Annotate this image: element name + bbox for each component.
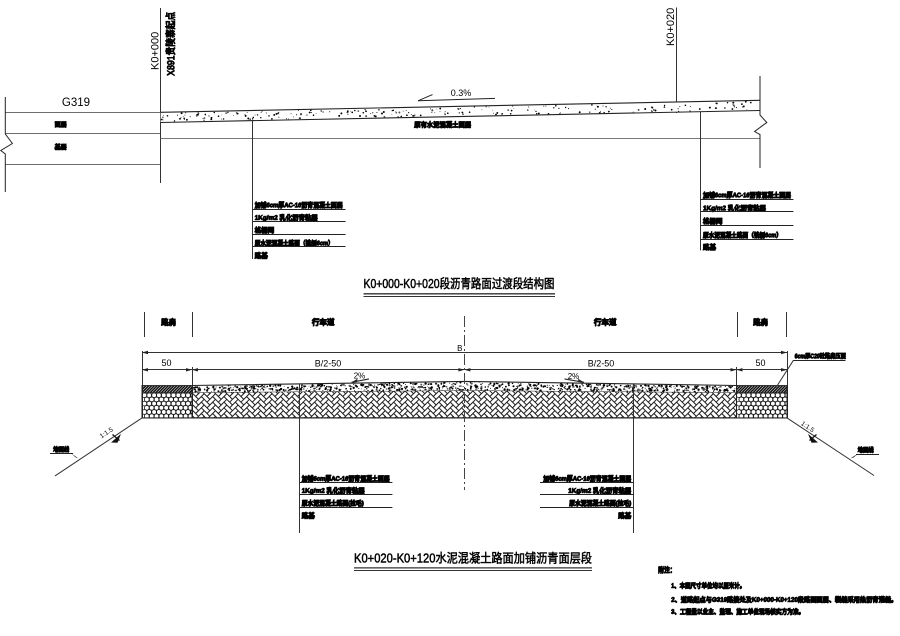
svg-text:路肩: 路肩 [753,317,768,327]
svg-text:行车道: 行车道 [593,317,617,327]
svg-text:1Kg/m2 乳化沥青粘层: 1Kg/m2 乳化沥青粘层 [302,486,366,495]
svg-text:路基: 路基 [703,242,717,251]
svg-text:B/2-50: B/2-50 [588,359,615,369]
svg-text:6cm厚C20砼路肩压顶: 6cm厚C20砼路肩压顶 [795,352,846,360]
svg-text:K0+020: K0+020 [665,8,677,46]
svg-text:G319: G319 [62,97,90,109]
svg-text:1Kg/m2 乳化沥青粘层: 1Kg/m2 乳化沥青粘层 [255,213,319,222]
svg-text:面层: 面层 [55,121,67,129]
svg-text:格栅网: 格栅网 [703,216,723,225]
svg-text:路肩: 路肩 [161,317,176,327]
svg-text:K0+020-K0+120水泥混凝土路面加铺沥青面层段: K0+020-K0+120水泥混凝土路面加铺沥青面层段 [354,551,592,566]
svg-text:路基: 路基 [618,511,632,520]
svg-text:原有水泥混凝土面层: 原有水泥混凝土面层 [414,120,471,129]
svg-text:原水泥混凝土路面(拉毛): 原水泥混凝土路面(拉毛) [302,498,364,507]
svg-text:行车道: 行车道 [311,317,335,327]
svg-text:加铺6cm厚AC-16沥青混凝土面层: 加铺6cm厚AC-16沥青混凝土面层 [301,473,390,482]
svg-text:2%: 2% [354,372,366,381]
svg-text:原水泥混凝土路面（铣刨6cm）: 原水泥混凝土路面（铣刨6cm） [703,230,782,239]
svg-text:加铺6cm厚AC-16沥青混凝土面层: 加铺6cm厚AC-16沥青混凝土面层 [254,200,343,209]
svg-text:3、工程量以业主、监理、施工单位现场核实方为准。: 3、工程量以业主、监理、施工单位现场核实方为准。 [671,607,804,616]
svg-text:路基: 路基 [302,511,316,520]
svg-text:1、本图尺寸单位均以厘米计。: 1、本图尺寸单位均以厘米计。 [671,581,745,590]
svg-text:B/2-50: B/2-50 [315,359,342,369]
svg-text:B: B [457,344,462,353]
svg-text:地面线: 地面线 [858,446,874,454]
svg-text:50: 50 [161,358,171,368]
svg-text:K0+000: K0+000 [150,32,162,70]
svg-text:K0+000-K0+020段沥青路面过渡段结构图: K0+000-K0+020段沥青路面过渡段结构图 [364,276,555,291]
svg-text:地面线: 地面线 [53,446,69,454]
svg-text:路基: 路基 [255,250,269,259]
svg-text:基层: 基层 [54,143,67,151]
svg-text:0.3%: 0.3% [451,88,472,98]
svg-text:原水泥混凝土路面(拉毛): 原水泥混凝土路面(拉毛) [569,498,631,507]
svg-text:X891贵陵寨起点: X891贵陵寨起点 [164,12,177,76]
svg-text:格栅网: 格栅网 [255,225,275,234]
svg-text:附注：: 附注： [658,565,676,574]
svg-text:1Kg/m2 乳化沥青粘层: 1Kg/m2 乳化沥青粘层 [703,203,767,212]
svg-text:原水泥混凝土路面（铣刨6cm）: 原水泥混凝土路面（铣刨6cm） [255,238,334,247]
svg-text:1Kg/m2 乳化沥青粘层: 1Kg/m2 乳化沥青粘层 [568,486,632,495]
svg-text:加铺6cm厚AC-16沥青混凝土面层: 加铺6cm厚AC-16沥青混凝土面层 [702,190,791,199]
svg-text:50: 50 [755,358,765,368]
svg-text:加铺6cm厚AC-16沥青混凝土面层: 加铺6cm厚AC-16沥青混凝土面层 [542,473,631,482]
svg-text:2、道路起点与G319路接处及K0+000-K0+120段路: 2、道路起点与G319路接处及K0+000-K0+120段路面面层、裂缝采用热沥… [671,595,897,604]
